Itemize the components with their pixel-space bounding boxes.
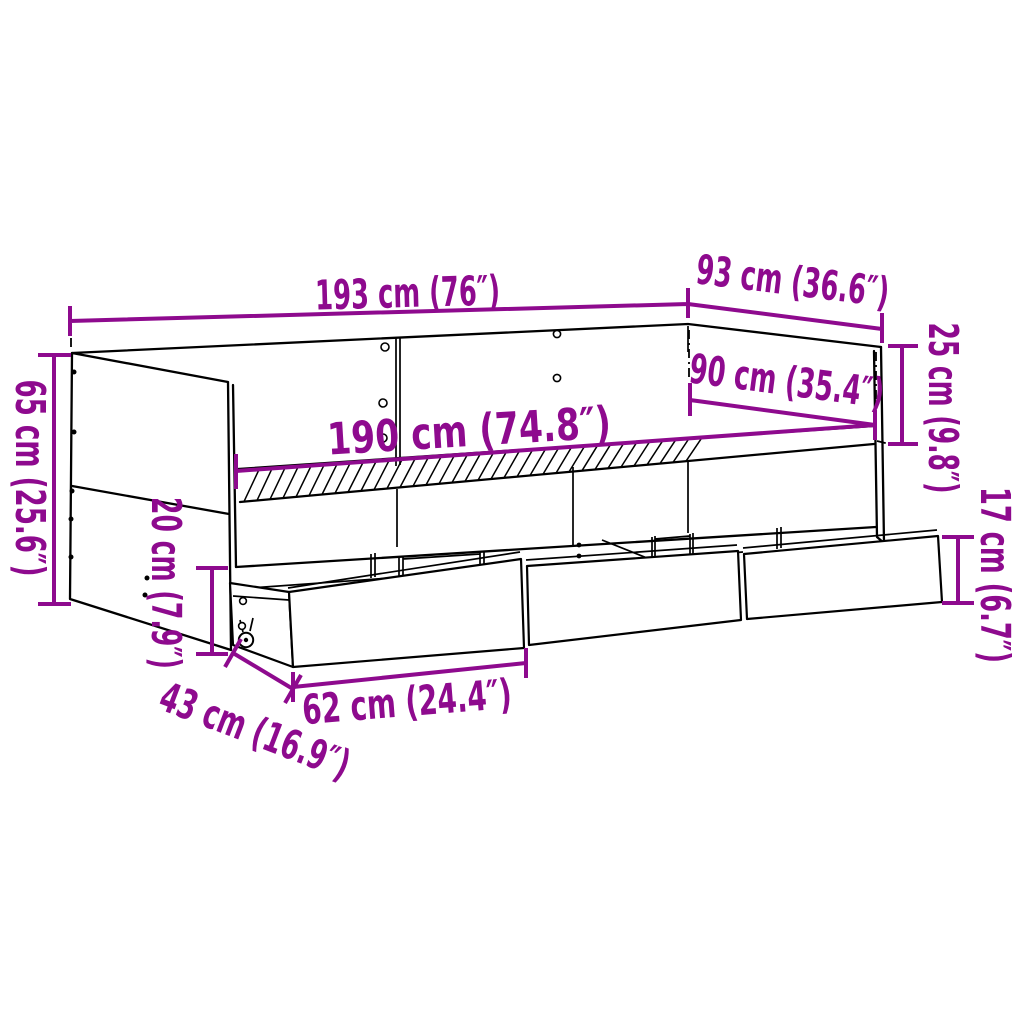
dim-label-outer-length: 193 cm (76″) bbox=[314, 266, 500, 319]
dim-label-mattress-width: 90 cm (35.4″) bbox=[687, 345, 888, 418]
dim-label-mattress-length: 190 cm (74.8″) bbox=[326, 397, 613, 465]
dim-label-drawer-width: 62 cm (24.4″) bbox=[300, 670, 513, 734]
dim-label-base-height: 20 cm (7.9″) bbox=[142, 497, 190, 669]
drawer-fronts bbox=[230, 530, 942, 667]
dim-label-drawer-height: 17 cm (6.7″) bbox=[971, 487, 1019, 663]
dim-label-total-height: 65 cm (25.6″) bbox=[6, 380, 54, 577]
drawer-front-middle bbox=[527, 551, 741, 645]
daybed-dimension-diagram: 193 cm (76″) 93 cm (36.6″) 25 cm (9.8″) … bbox=[0, 0, 1024, 1024]
dim-label-outer-depth: 93 cm (36.6″) bbox=[694, 245, 892, 316]
dim-line-17 bbox=[942, 537, 974, 603]
diagram-canvas: 193 cm (76″) 93 cm (36.6″) 25 cm (9.8″) … bbox=[0, 0, 1024, 1024]
drawer-front-left bbox=[289, 559, 524, 667]
dim-line-25 bbox=[888, 346, 918, 444]
dim-label-backrest-height: 25 cm (9.8″) bbox=[919, 323, 967, 494]
drawer-front-right bbox=[744, 536, 942, 619]
